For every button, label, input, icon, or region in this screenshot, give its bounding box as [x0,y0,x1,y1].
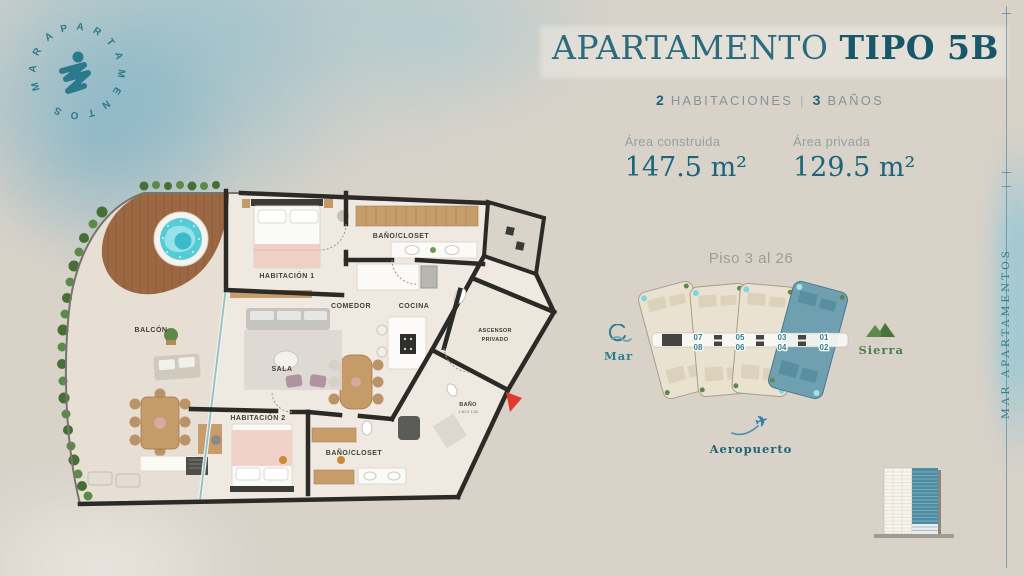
area-stats: Área construida 147.5 m² Área privada 12… [560,134,980,183]
label-bano-closet-top: BAÑO/CLOSET [373,231,430,240]
elevator-label-2: PRIVADO [482,337,509,343]
title-bold: TIPO 5B [839,28,998,67]
rooms-baths-line: 2 HABITACIONES | 3 BAÑOS [560,92,980,108]
unit-number: 01 [820,333,829,342]
label-bano-dims: 1.40 X 1.30 [458,410,477,414]
brand-logo: APARTAMENTOS MAR [16,10,138,132]
built-area: Área construida 147.5 m² [625,134,747,183]
label-sala: SALA [271,366,292,373]
private-area-label: Área privada [793,134,915,149]
baths-label: BAÑOS [827,93,884,108]
page-title: APARTAMENTO TIPO 5B [552,28,988,67]
mountain-icon [865,322,897,338]
unit-number: 06 [736,343,745,352]
unit-number: 08 [694,343,703,352]
floors-label: Piso 3 al 26 [598,250,904,267]
title-regular: APARTAMENTO [552,28,828,67]
jacuzzi [154,212,208,266]
floor-plan: ASCENSOR PRIVADO [40,172,564,532]
elevator-label-1: ASCENSOR [478,328,512,334]
unit-number: 07 [694,333,703,342]
logo-figure-icon [62,52,88,92]
label-comedor: COMEDOR [331,303,371,310]
sierra-label: Sierra [858,343,904,357]
unit-number: 02 [820,343,829,352]
label-bano-closet-bottom: BAÑO/CLOSET [326,448,383,457]
label-bano: BAÑO [459,401,477,408]
entrance-arrow [506,392,522,412]
label-habitacion2: HABITACIÓN 2 [230,413,285,422]
building-locator: Piso 3 al 26 [598,250,904,460]
rule-tick [1002,186,1011,187]
divider: | [800,93,806,108]
aeropuerto-marker: ✈ Aeropuerto [598,411,904,456]
label-cocina: COCINA [399,303,430,310]
bedrooms-count: 2 [656,92,664,108]
bedrooms-label: HABITACIONES [671,93,793,108]
rule-tick [1002,13,1011,14]
sierra-marker: Sierra [858,322,904,357]
label-balcon: BALCÓN [135,325,168,334]
baths-count: 3 [813,92,821,108]
airplane-icon: ✈ [728,411,774,437]
wave-icon [606,324,632,344]
mar-marker: Mar [604,324,633,363]
logo-arc-text-2: MAR [27,39,48,92]
unit-number: 04 [778,343,787,352]
side-brand-text: MAR APARTAMENTOS [1000,248,1012,419]
built-area-value: 147.5 m² [625,152,747,183]
svg-text:MAR: MAR [27,39,48,92]
private-area-value: 129.5 m² [793,152,915,183]
building-icon [870,456,958,546]
floorplate-diagram: 07 08 05 06 03 04 01 02 [634,276,864,406]
living-furniture [244,308,342,390]
label-habitacion1: HABITACIÓN 1 [259,271,314,280]
unit-number: 03 [778,333,787,342]
brochure-page: APARTAMENTOS MAR APARTAMENTO TIPO 5B 2 H… [0,0,1024,576]
unit-number: 05 [736,333,745,342]
mar-label: Mar [604,349,633,363]
rule-tick [1002,172,1011,173]
private-area: Área privada 129.5 m² [793,134,915,183]
aeropuerto-label: Aeropuerto [598,442,904,456]
built-area-label: Área construida [625,134,747,149]
